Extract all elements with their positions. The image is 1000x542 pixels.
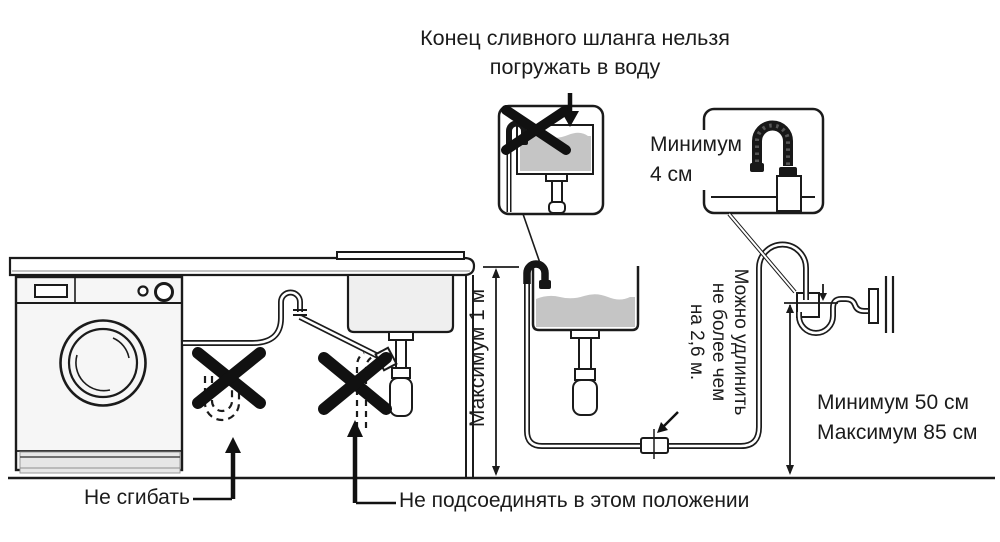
installation-diagram: Конец сливного шланга нельзя погружать в…: [0, 0, 1000, 542]
knob-small: [139, 287, 148, 296]
knob-large: [156, 284, 173, 301]
title-line-1: Конец сливного шланга нельзя: [415, 24, 735, 53]
x-mark-bent-hose: [198, 353, 260, 403]
bottle-trap: [390, 378, 412, 416]
label-min-4cm: Минимум 4 см: [650, 130, 746, 190]
label-no-connect: Не подсоединять в этом положении: [399, 489, 749, 513]
extension-connector: [641, 429, 668, 459]
wall-flange: [869, 289, 878, 323]
washing-machine: [16, 277, 182, 473]
title-line-2: погружать в воду: [415, 53, 735, 82]
arrow-no-bend: [193, 437, 241, 499]
label-extension-limit: Можно удлинить не более чем на 2,6 м.: [685, 262, 751, 422]
label-max-1m: Максимум 1 м: [466, 273, 490, 443]
x-mark-wrong-connection: [324, 358, 386, 409]
label-no-bend: Не сгибать: [84, 486, 190, 510]
arrow-no-connect: [347, 420, 396, 503]
arrow-extension-connector: [657, 412, 678, 433]
title-note: Конец сливного шланга нельзя погружать в…: [415, 24, 735, 82]
label-standpipe-height: Минимум 50 см Максимум 85 см: [817, 388, 977, 448]
inset-submerged-hose: [499, 106, 603, 214]
machine-base: [20, 452, 180, 473]
detergent-drawer: [35, 285, 67, 297]
bottle-trap: [573, 380, 597, 415]
